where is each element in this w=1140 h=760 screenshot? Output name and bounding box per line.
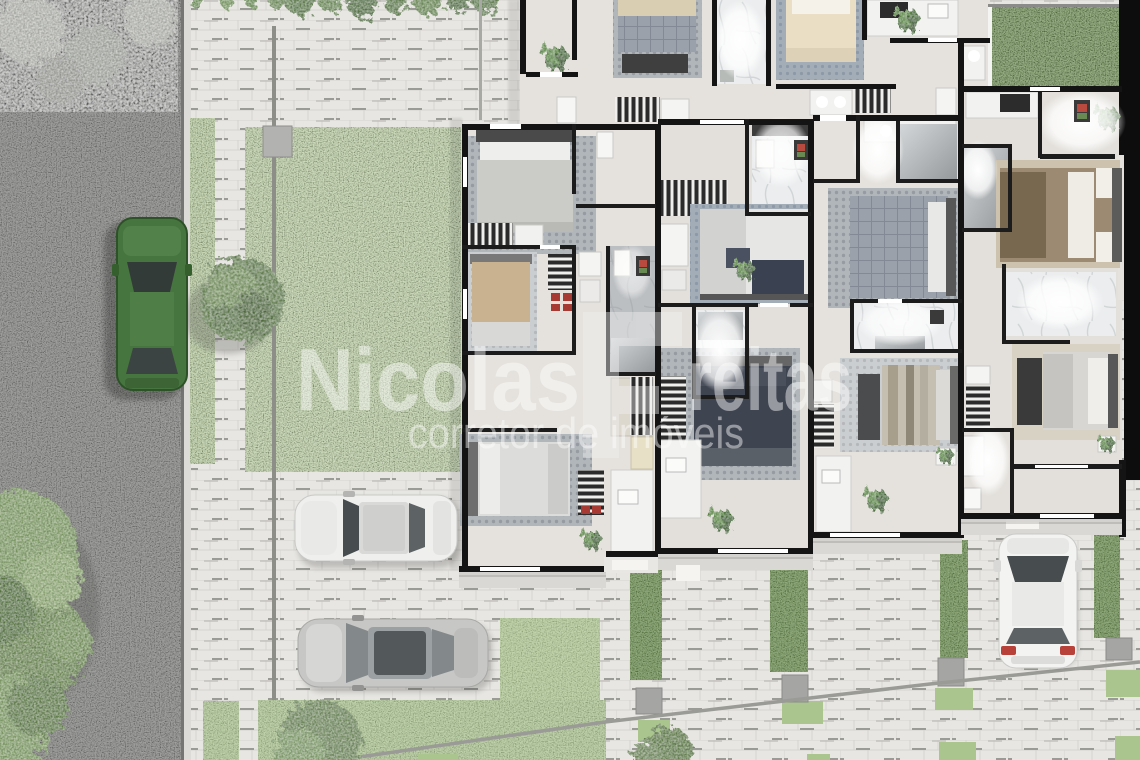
svg-text:corretor de imóveis: corretor de imóveis [408, 409, 744, 458]
